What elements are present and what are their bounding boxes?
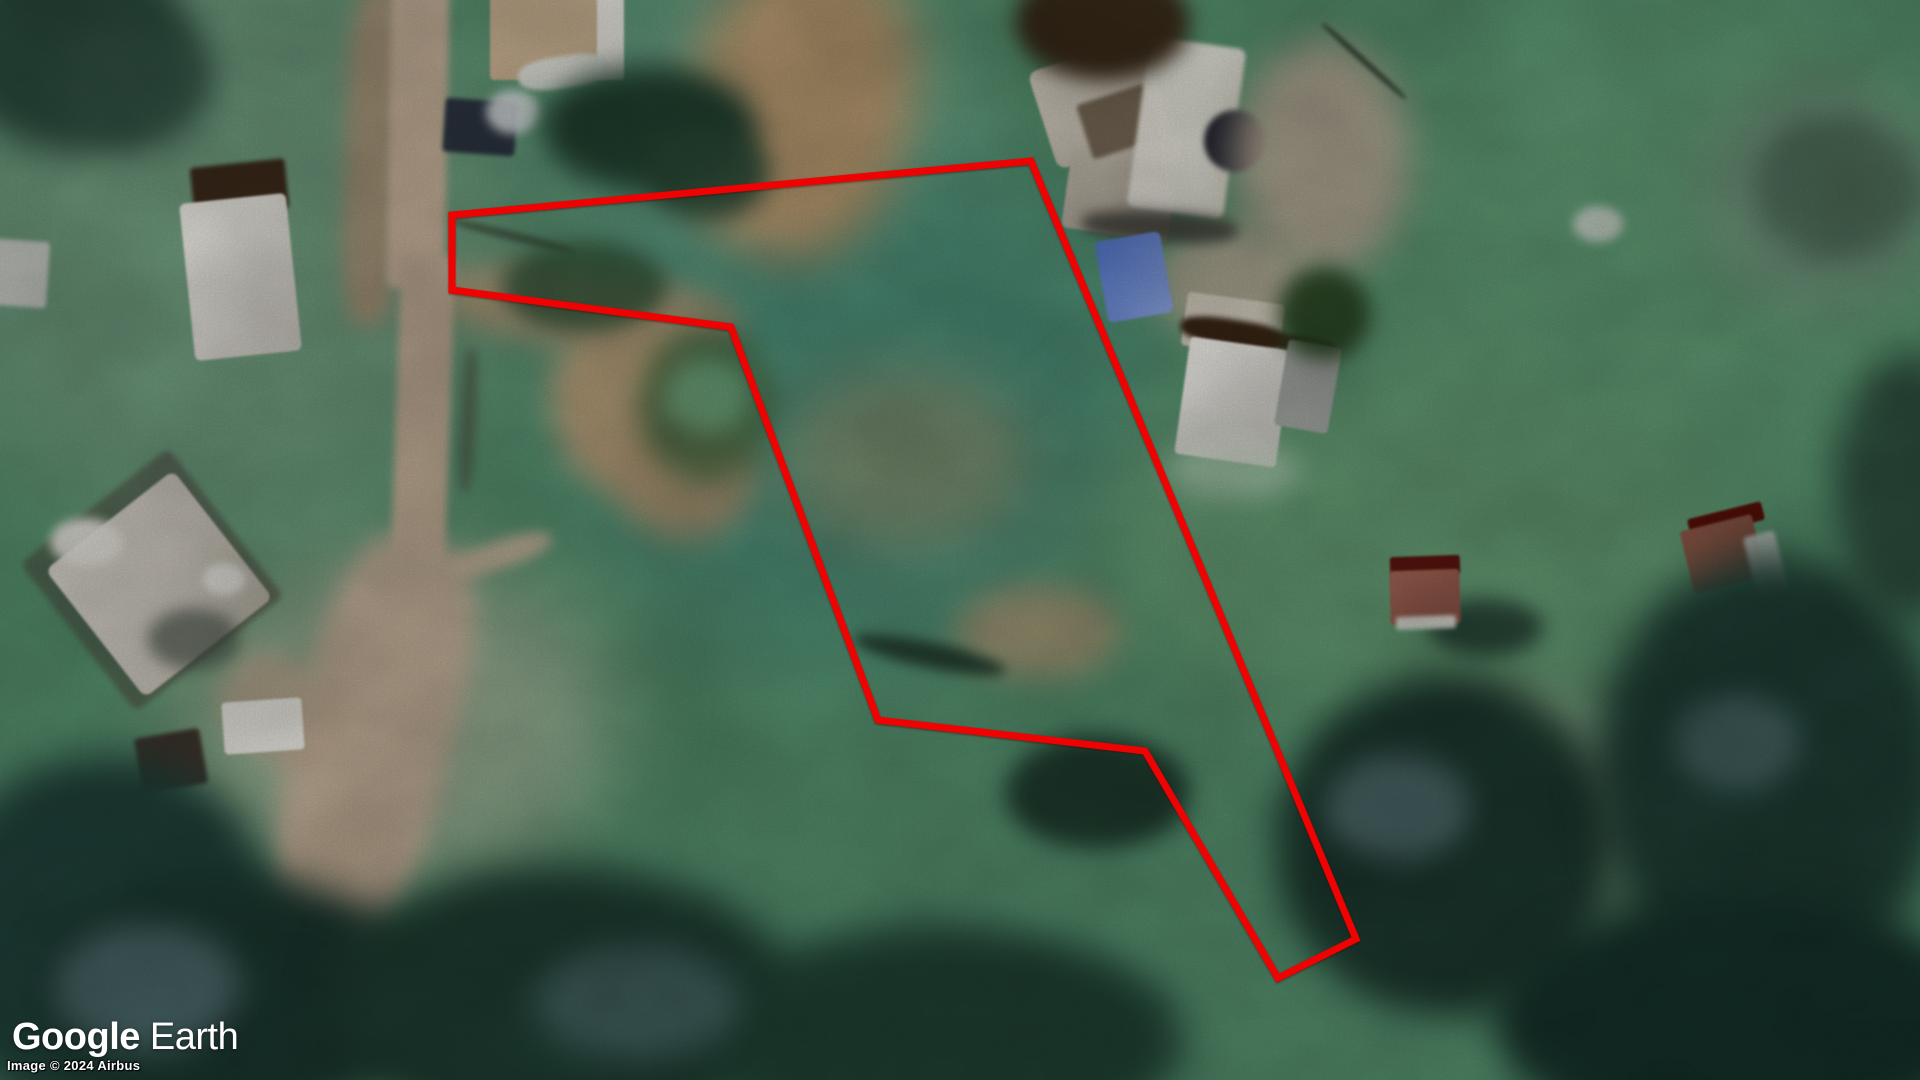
- house-bl-dark-court: [148, 608, 240, 670]
- dark-house-white-accent: [486, 90, 540, 134]
- trees-right-of-complex: [1278, 268, 1370, 360]
- trees-top-left-2: [55, 15, 215, 145]
- bushes-field-left: [502, 242, 667, 332]
- barn-light-halo: [1165, 438, 1300, 500]
- road-main-upper: [386, 0, 449, 288]
- building-left-edge: [0, 238, 50, 309]
- google-earth-logo: GoogleEarth: [12, 1018, 238, 1056]
- shed-red-center-trim: [1396, 615, 1456, 630]
- imagery-attribution: Image © 2024 Airbus: [7, 1058, 140, 1073]
- bushes-below-polygon: [1005, 735, 1190, 850]
- scrub-streaks-top-right: [1755, 115, 1920, 260]
- trees-top-mid-2: [645, 125, 770, 220]
- canopy-highlight-3: [535, 945, 740, 1060]
- road-main-mid: [391, 254, 456, 566]
- canopy-highlight-2: [1325, 755, 1470, 860]
- mint-patch: [665, 358, 750, 433]
- shed-white-bl: [221, 697, 304, 754]
- house-bl-white-wing: [50, 518, 122, 566]
- imagery-layer: [0, 0, 1920, 1080]
- canopy-highlight-4: [1675, 695, 1800, 790]
- house-top-left-roof: [179, 193, 302, 361]
- logo-earth-text: Earth: [150, 1016, 238, 1058]
- white-patch-right-field: [1573, 206, 1623, 242]
- satellite-map-viewport[interactable]: GoogleEarth Image © 2024 Airbus: [0, 0, 1920, 1080]
- logo-google-text: Google: [12, 1016, 140, 1058]
- dirt-mid-right: [780, 370, 1030, 550]
- white-dot-bl: [203, 563, 245, 595]
- blue-tarp: [1094, 231, 1173, 323]
